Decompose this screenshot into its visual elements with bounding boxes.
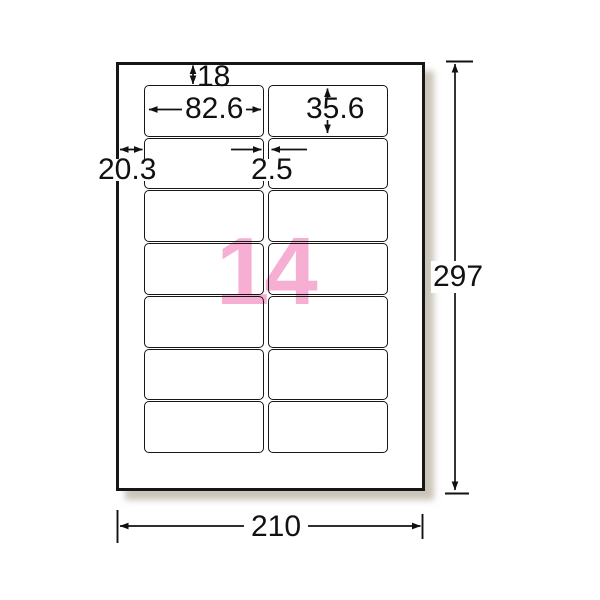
dim-sheet-width: 210 <box>244 516 308 538</box>
dim-label-width: 82.6 <box>182 98 246 120</box>
dim-top-margin: 18 <box>197 66 230 88</box>
diagram-canvas: 14 18 82.6 35.6 20.3 2.5 29 <box>0 0 600 600</box>
dim-sheet-height: 297 <box>431 261 485 293</box>
dim-left-margin: 20.3 <box>96 159 158 181</box>
dim-column-gap: 2.5 <box>247 159 297 181</box>
dim-label-height: 35.6 <box>303 98 367 120</box>
